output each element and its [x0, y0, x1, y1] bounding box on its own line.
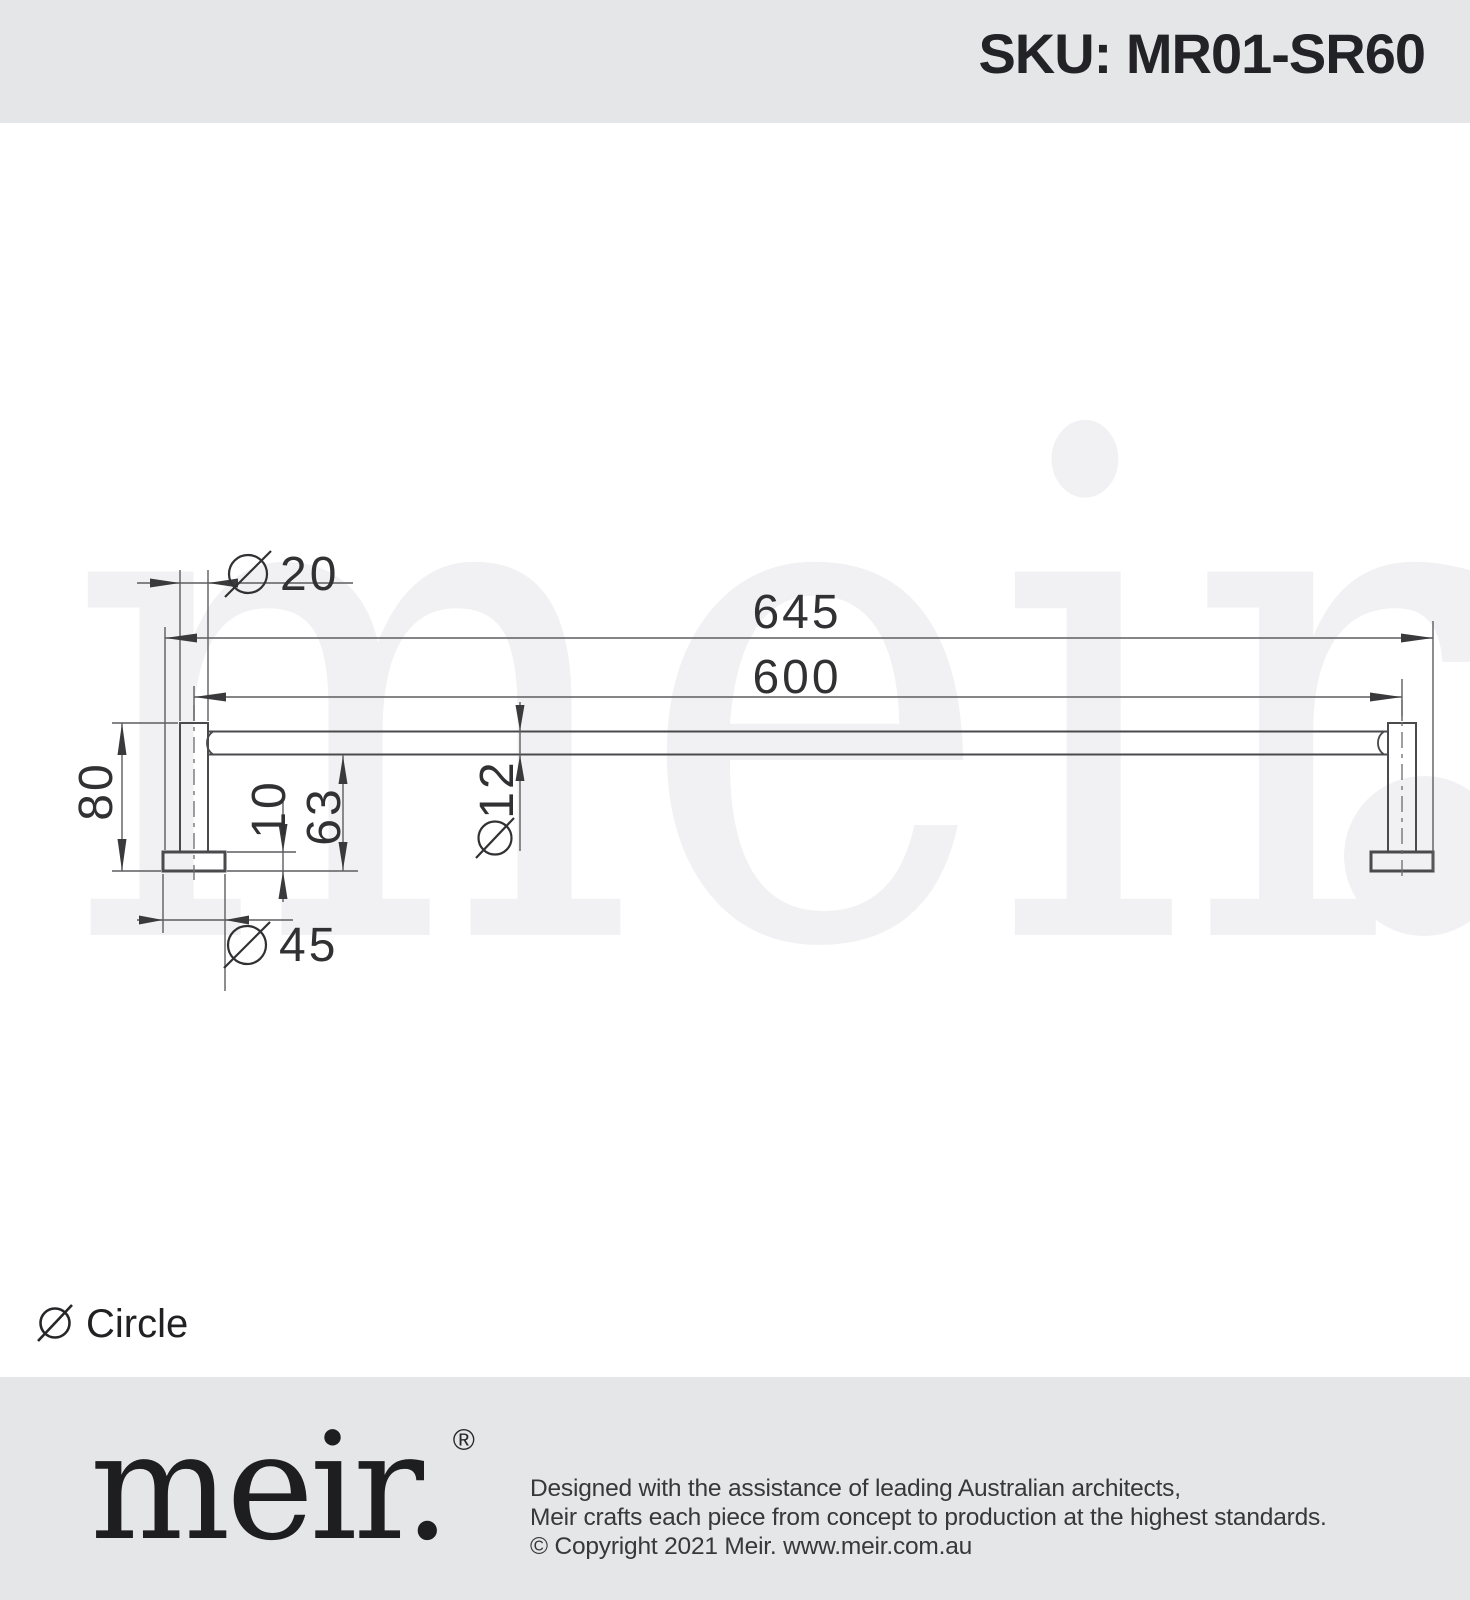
dimension-value: 12 [471, 759, 524, 818]
registered-trademark-icon: ® [453, 1424, 475, 1457]
legend-label: Circle [86, 1302, 188, 1346]
dimension-overall-height: 80 [70, 761, 123, 820]
footer-logo-text: meir. [90, 1401, 447, 1573]
dimension-overall-length: 645 [752, 586, 841, 639]
circle-symbol-icon [38, 1305, 72, 1341]
footer-description: Designed with the assistance of leading … [530, 1474, 1327, 1561]
dimension-value: 45 [279, 919, 338, 972]
dimension-under-clearance: 63 [298, 786, 351, 845]
footer-line: Meir crafts each piece from concept to p… [530, 1503, 1327, 1532]
legend: Circle [38, 1302, 188, 1346]
dimension-value: 20 [280, 548, 339, 601]
dimension-centres-length: 600 [752, 651, 841, 704]
footer-logo: meir.® [90, 1413, 469, 1561]
dimension-flange-thickness: 10 [243, 779, 296, 838]
footer-line: Designed with the assistance of leading … [530, 1474, 1327, 1503]
footer-line: © Copyright 2021 Meir. www.meir.com.au [530, 1532, 1327, 1561]
towel-rail-technical-drawing: meir [0, 0, 1470, 1600]
